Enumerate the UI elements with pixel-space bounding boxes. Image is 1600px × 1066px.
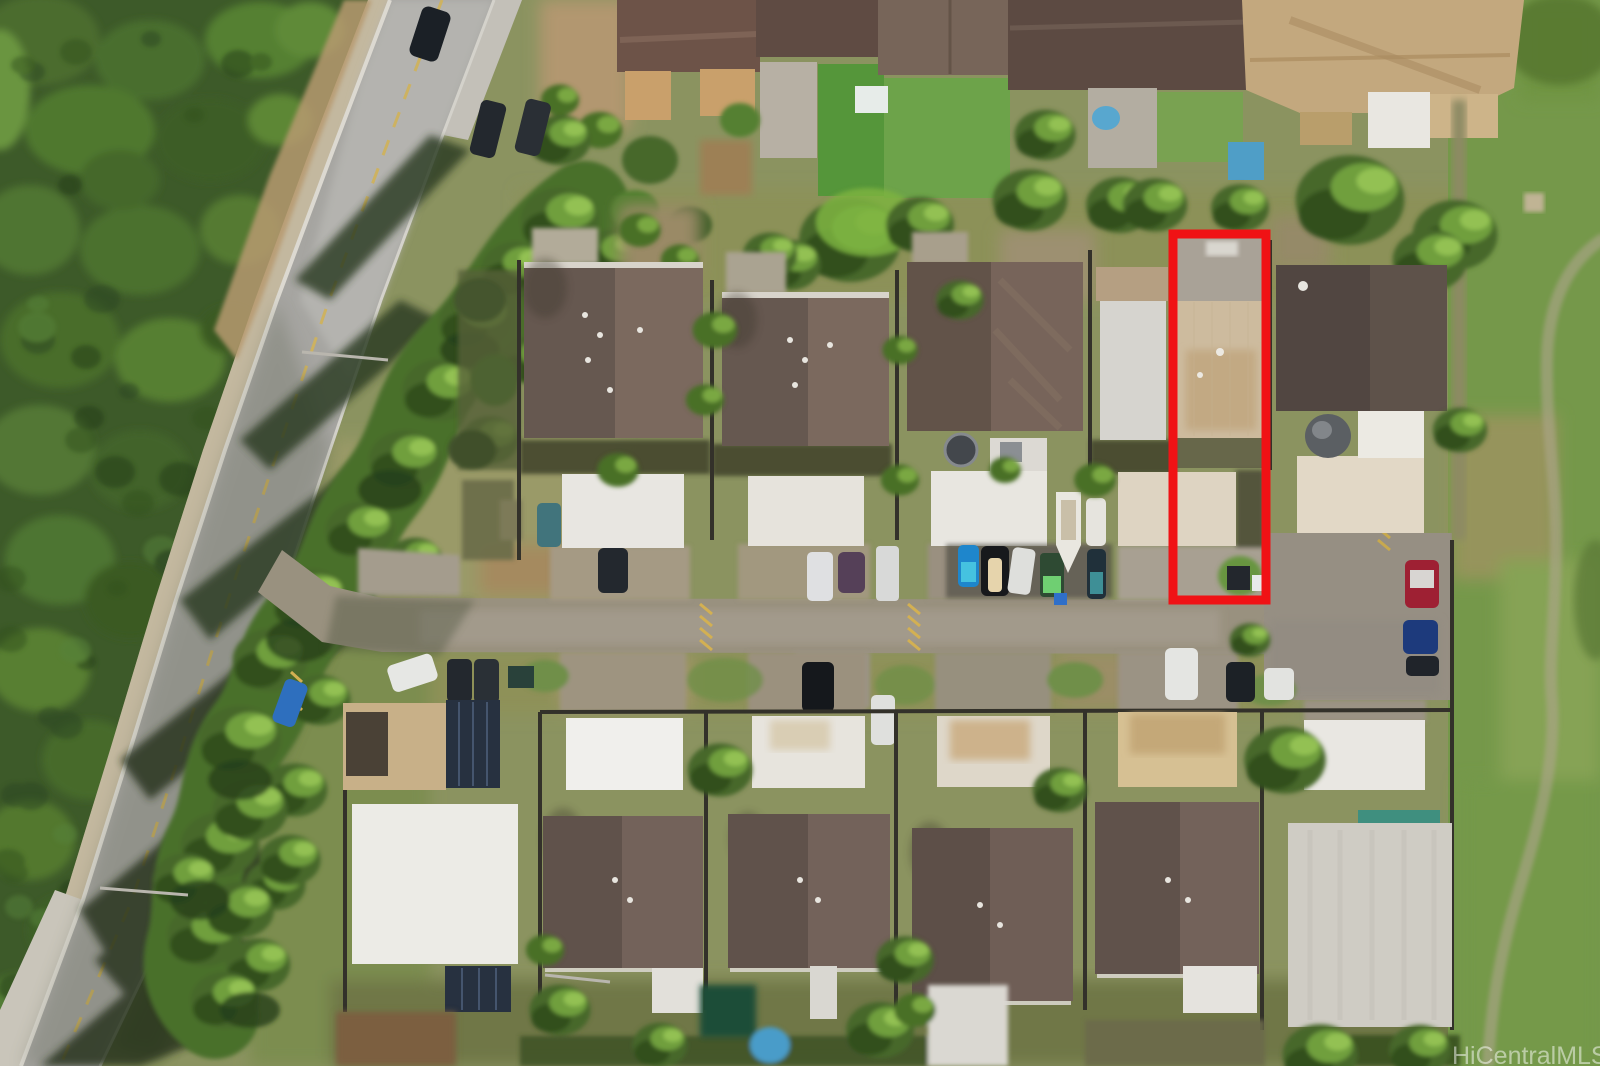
svg-text:HiCentralMLS: HiCentralMLS <box>1452 1042 1600 1066</box>
